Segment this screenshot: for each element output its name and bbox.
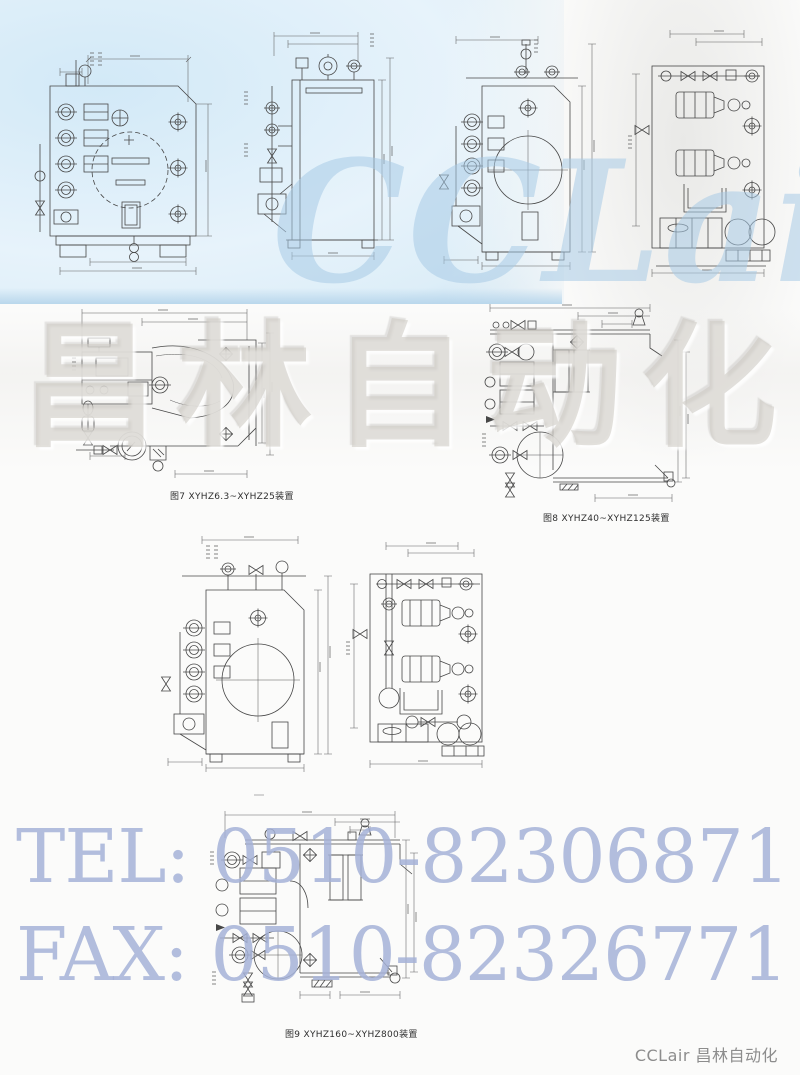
drawing-plan-view-pump-unit-2 bbox=[346, 538, 510, 768]
drawing-front-view-small-station bbox=[26, 48, 222, 280]
drawing-side-view-medium-station bbox=[426, 30, 598, 274]
figure9-caption: 图9 XYHZ160~XYHZ800装置 bbox=[285, 1027, 418, 1040]
figure9-drawing bbox=[210, 786, 440, 1026]
drawing-side-view-small-station bbox=[230, 26, 398, 270]
footer-brand-line: CCLair 昌林自动化 bbox=[635, 1042, 778, 1066]
figure7-drawing bbox=[70, 298, 290, 486]
catalog-page: 图7 XYHZ6.3~XYHZ25装置 图8 XYHZ40~XYHZ125装置 bbox=[0, 0, 800, 1075]
drawing-plan-view-pump-unit bbox=[626, 26, 784, 278]
figure7-caption: 图7 XYHZ6.3~XYHZ25装置 bbox=[170, 489, 294, 502]
figure8-drawing bbox=[482, 298, 700, 510]
drawing-side-view-large-station bbox=[150, 532, 344, 778]
figure8-caption: 图8 XYHZ40~XYHZ125装置 bbox=[543, 511, 670, 524]
